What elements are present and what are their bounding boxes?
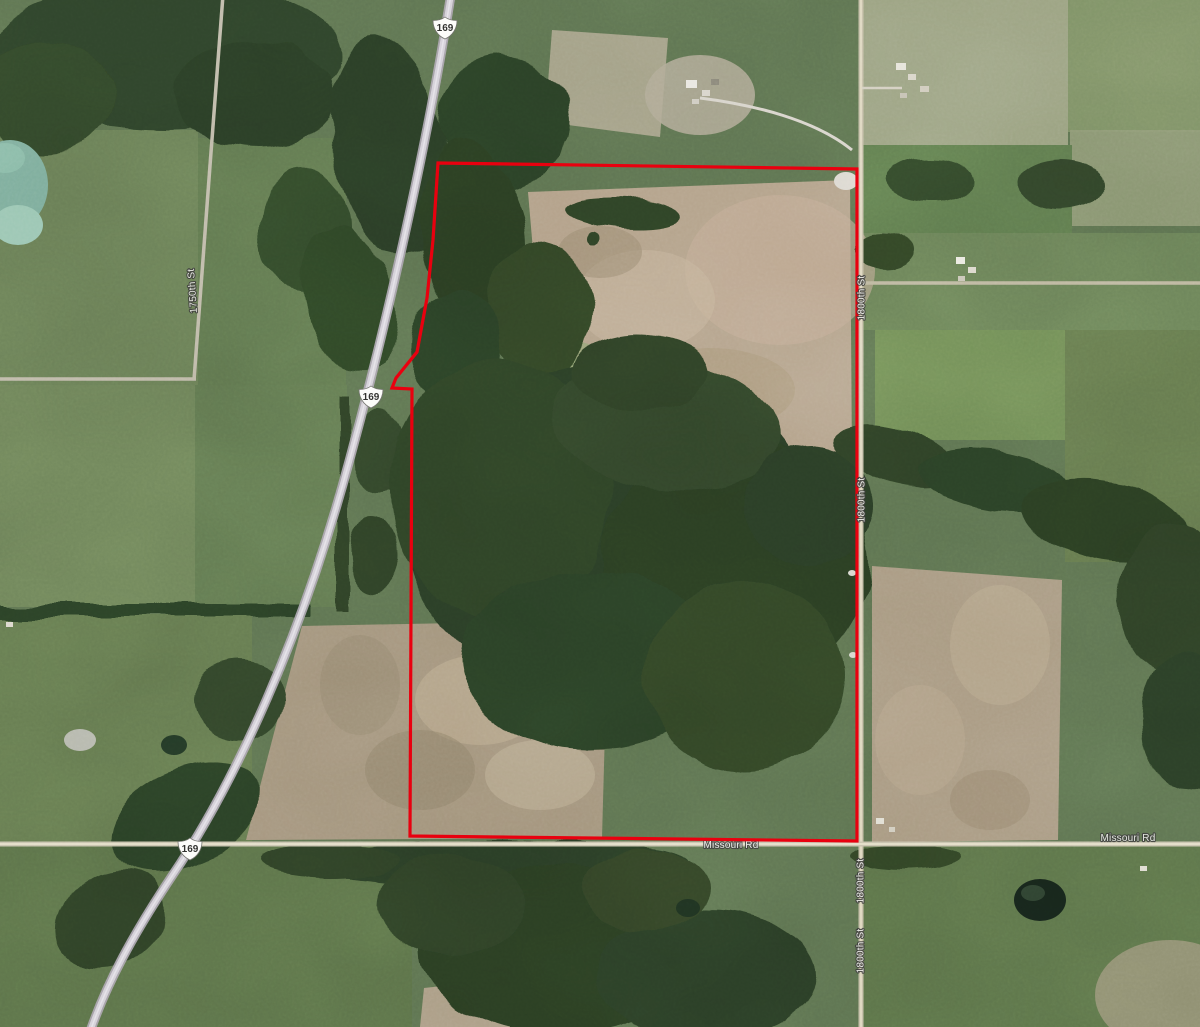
road-label-missouri-rd-center: Missouri Rd	[704, 840, 759, 851]
pond-gray	[64, 729, 96, 751]
svg-text:169: 169	[182, 844, 199, 855]
road-label-1800th-st-lower-b: 1800th St	[856, 929, 867, 974]
road-label-1800th-st-lower-a: 1800th St	[856, 859, 867, 904]
satellite-map[interactable]: Missouri Rd Missouri Rd 1800th St 1800th…	[0, 0, 1200, 1027]
road-label-missouri-rd-east: Missouri Rd	[1101, 833, 1156, 844]
pond-dark-south	[676, 899, 700, 917]
svg-text:169: 169	[363, 392, 380, 403]
road-label-1800th-st-upper: 1800th St	[857, 276, 868, 321]
pond-dark-west	[161, 735, 187, 755]
terrain-base-layer	[0, 0, 1200, 1027]
satellite-map-viewport[interactable]: Missouri Rd Missouri Rd 1800th St 1800th…	[0, 0, 1200, 1027]
pond-dark-southeast	[1014, 879, 1066, 921]
svg-text:169: 169	[437, 23, 454, 34]
road-label-1800th-st-middle: 1800th St	[857, 478, 868, 523]
